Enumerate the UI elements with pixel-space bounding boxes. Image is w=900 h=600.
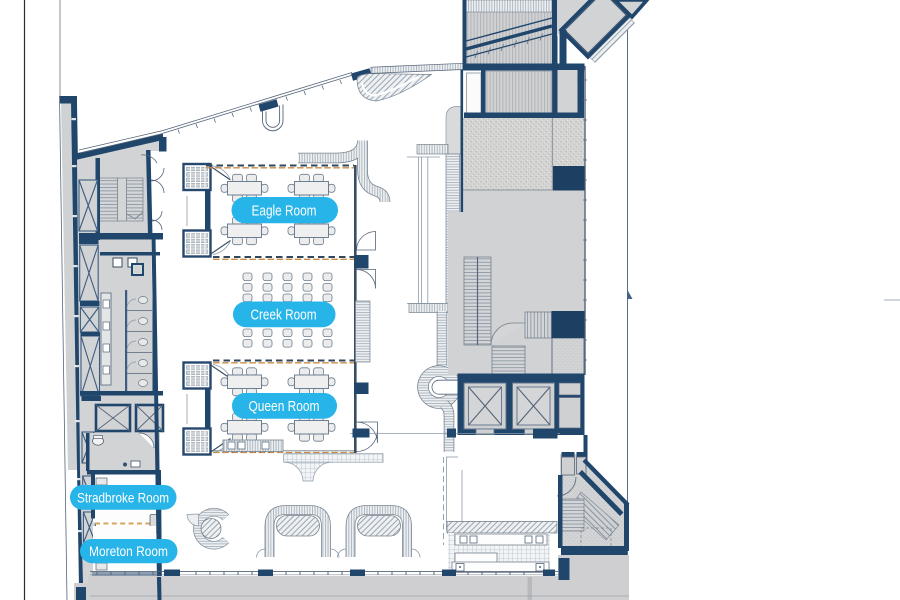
svg-text:Creek Room: Creek Room (251, 307, 317, 324)
svg-text:Eagle Room: Eagle Room (252, 202, 317, 219)
svg-text:Moreton Room: Moreton Room (89, 544, 168, 559)
svg-text:Stradbroke Room: Stradbroke Room (77, 490, 169, 505)
svg-text:Queen Room: Queen Room (249, 398, 320, 415)
